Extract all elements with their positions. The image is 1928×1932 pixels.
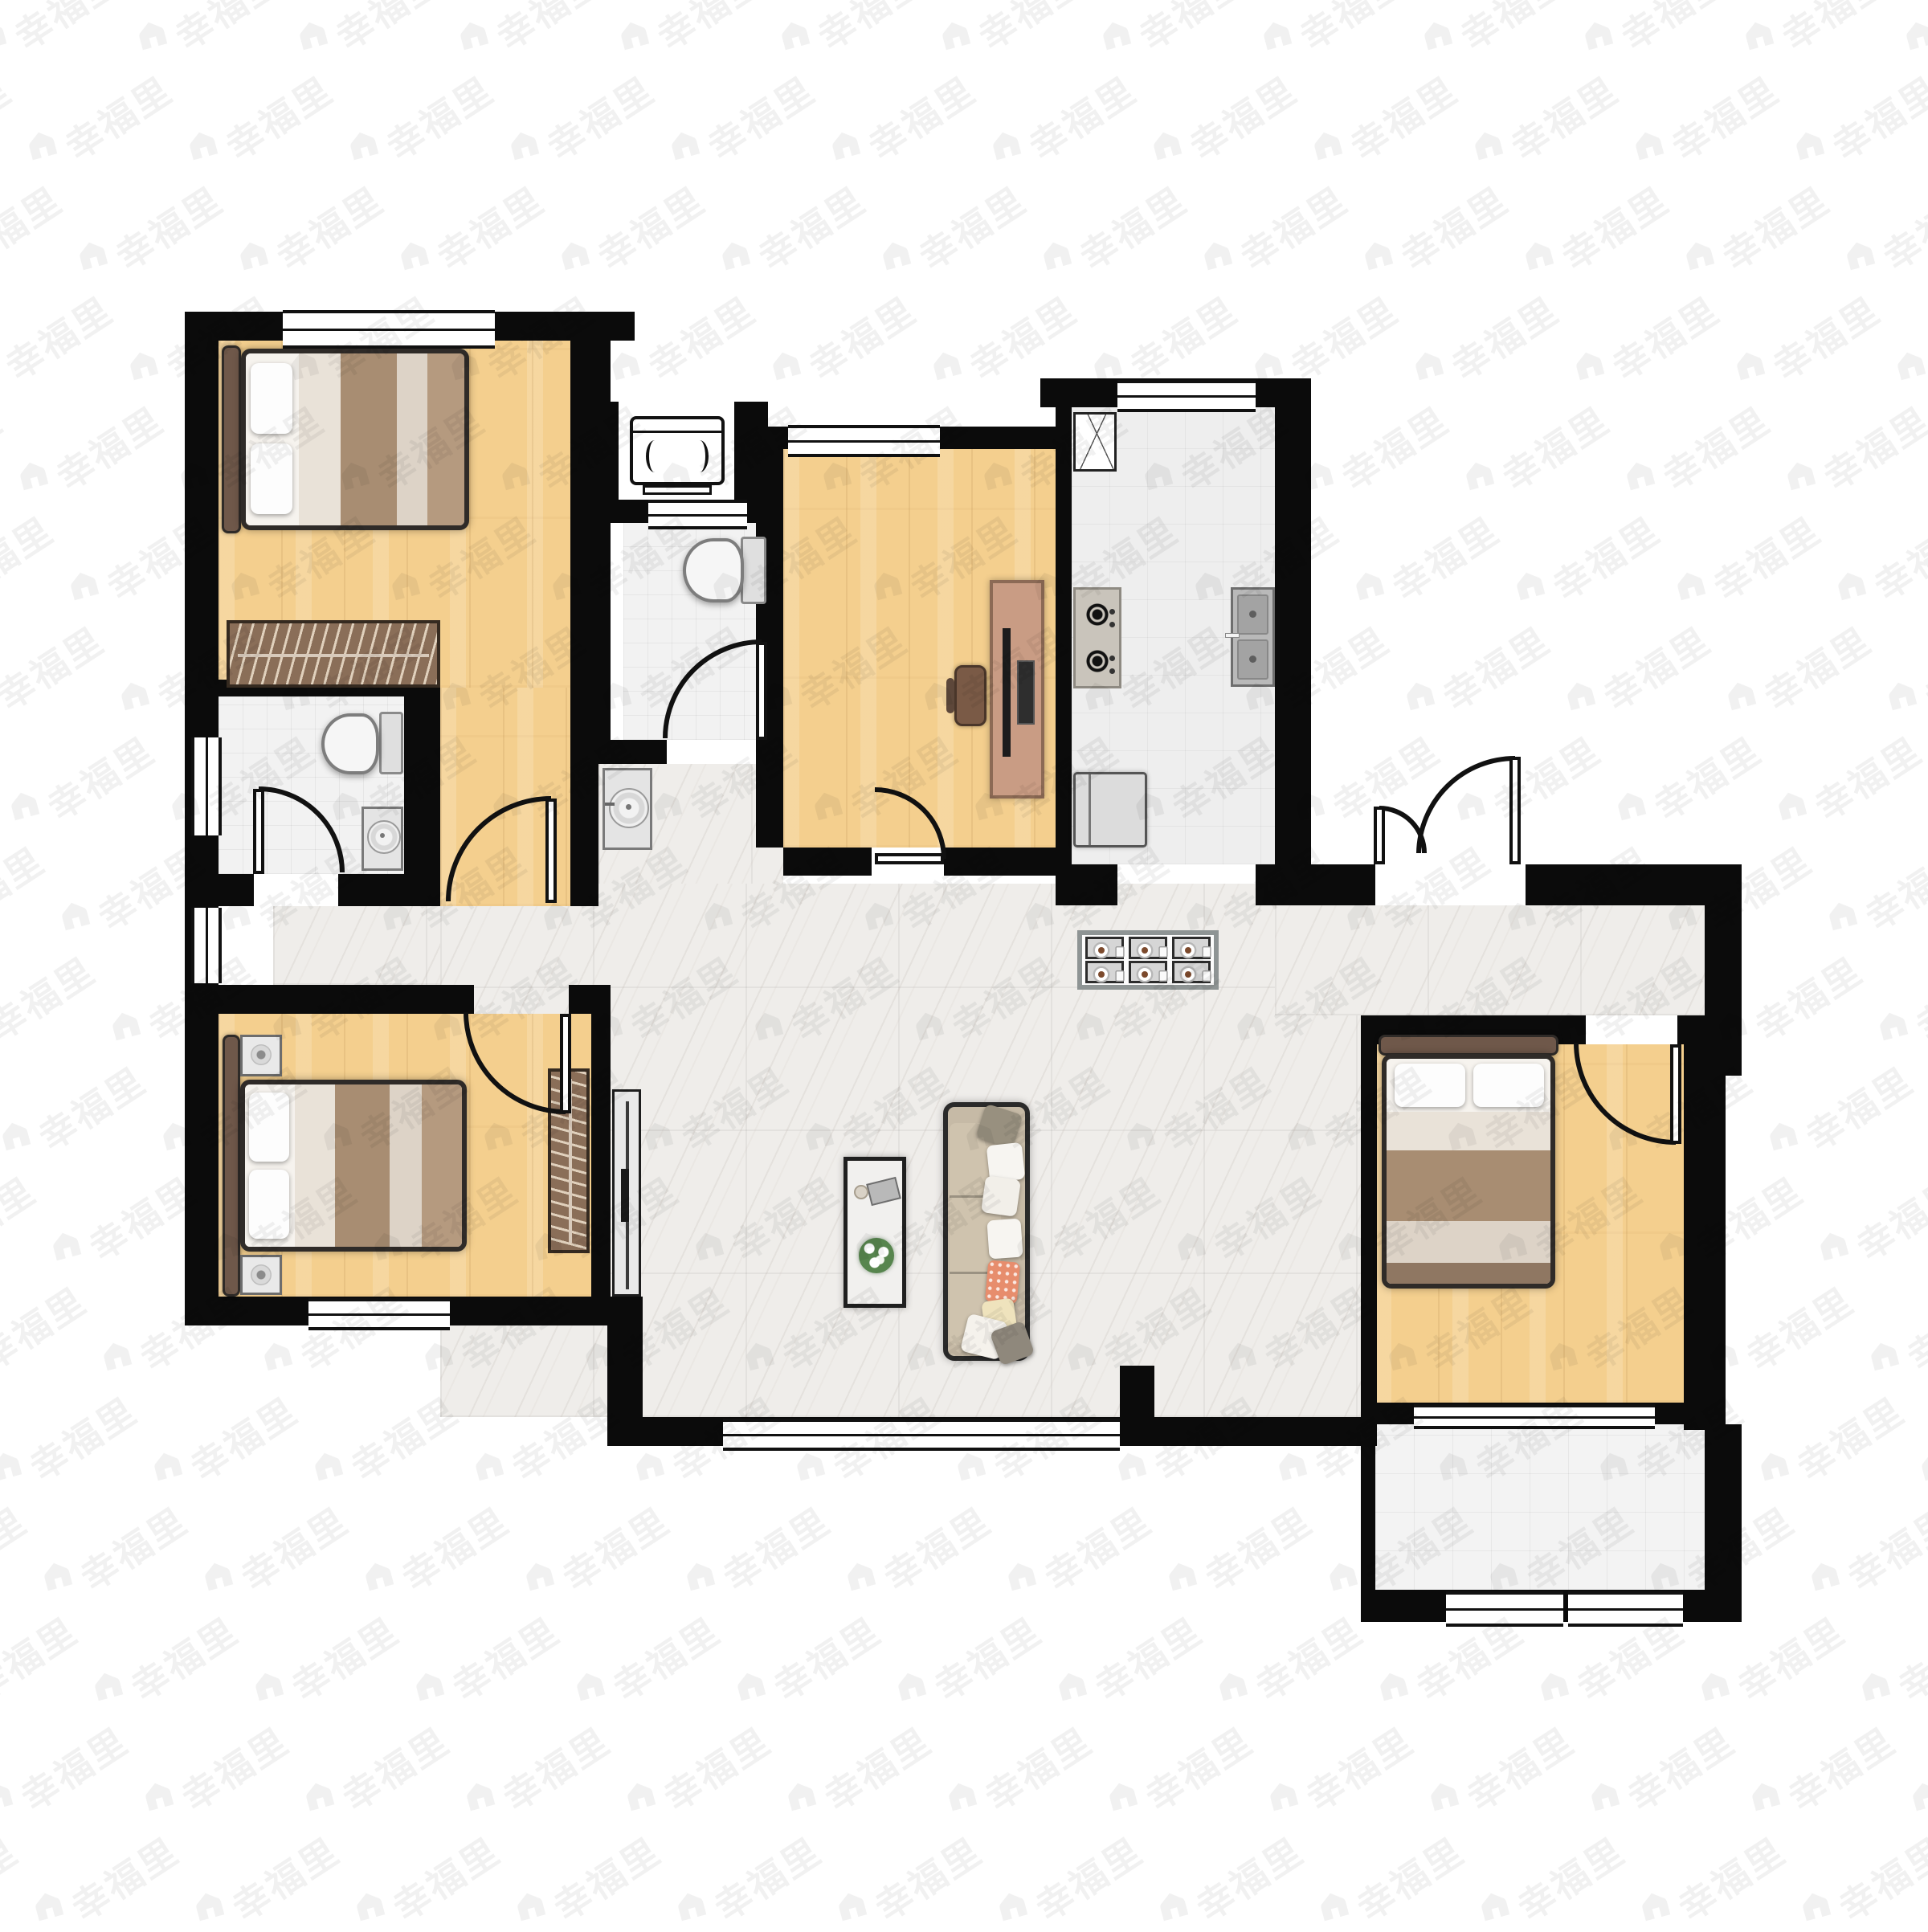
door-leaf-study [875, 853, 944, 864]
door-leaf-bathroom-left [253, 789, 264, 874]
door-leaf-bedroom-bottom-left [560, 1014, 571, 1113]
floorplan-canvas: 幸福里幸福里幸福里幸福里幸福里幸福里幸福里幸福里幸福里幸福里幸福里幸福里幸福里幸… [0, 0, 1928, 1928]
floor-plan [0, 0, 1928, 1928]
door-leaf-bathroom-middle [756, 642, 767, 740]
door-leaf-entry-main [1509, 757, 1521, 864]
door-leaf-bedroom-right [1670, 1044, 1681, 1144]
door-leaf-entry-small [1374, 807, 1385, 864]
door-leaf-bedroom-top-left [545, 799, 557, 903]
door-swing-arcs [0, 0, 1928, 1928]
